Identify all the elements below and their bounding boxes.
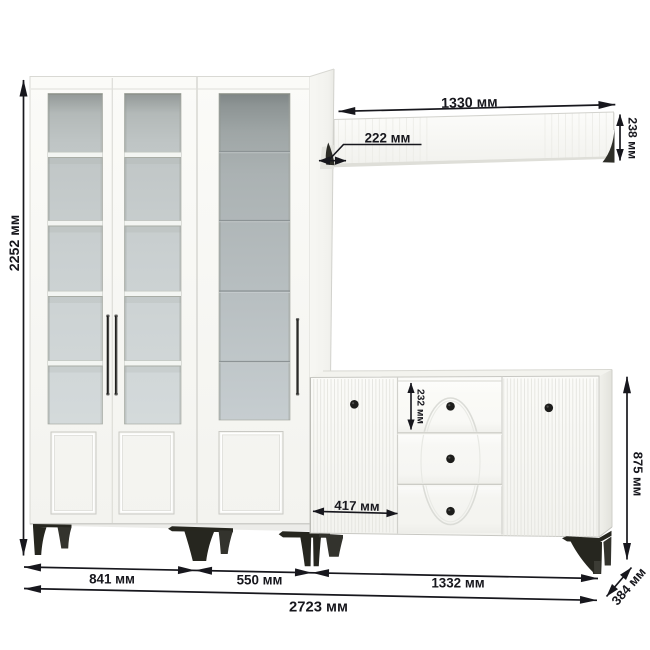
svg-text:841 мм: 841 мм xyxy=(89,571,135,586)
svg-text:232 мм: 232 мм xyxy=(414,389,425,424)
svg-text:222 мм: 222 мм xyxy=(365,131,411,146)
svg-text:1332 мм: 1332 мм xyxy=(431,575,484,590)
svg-text:238 мм: 238 мм xyxy=(625,117,639,159)
svg-text:1330 мм: 1330 мм xyxy=(441,95,498,112)
svg-text:875 мм: 875 мм xyxy=(630,452,645,497)
svg-text:417 мм: 417 мм xyxy=(334,498,380,514)
svg-text:2252 мм: 2252 мм xyxy=(7,215,23,272)
svg-text:550 мм: 550 мм xyxy=(237,572,283,587)
svg-text:2723 мм: 2723 мм xyxy=(289,600,348,616)
